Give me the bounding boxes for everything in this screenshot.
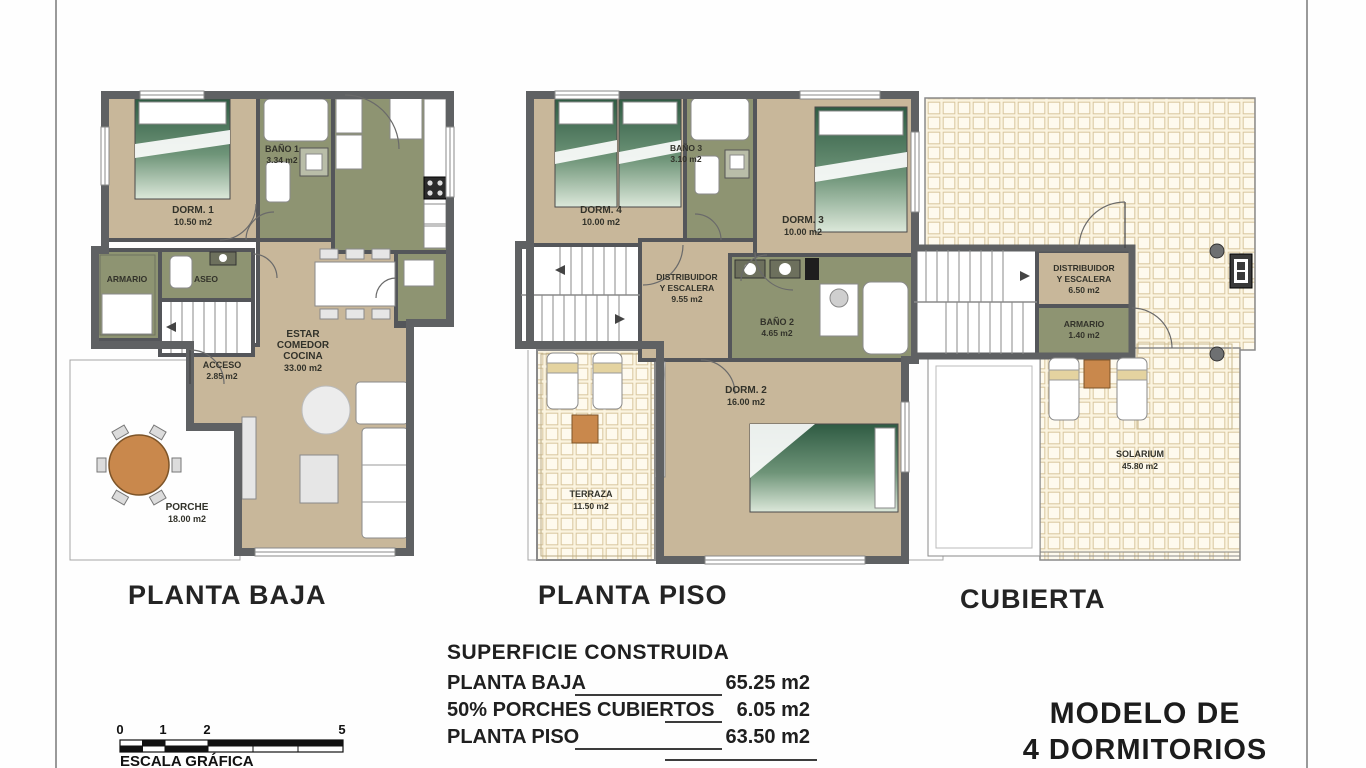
- model-line-1: MODELO DE: [1020, 697, 1270, 731]
- scale-bar: [120, 740, 343, 752]
- planta-baja-plan: PORCHE 18.00 m2: [60, 82, 470, 582]
- sheet-left-border: [55, 0, 57, 768]
- scale-tick-2: 2: [203, 722, 210, 737]
- scale-tick-0: 0: [116, 722, 123, 737]
- dorm1-bed: [135, 99, 230, 199]
- cubierta-plan: DISTRIBUIDOR Y ESCALERA 6.50 m2 ARMARIO …: [912, 86, 1272, 586]
- summary-row-value: 63.50 m2: [700, 726, 810, 749]
- roof-drain-1: [1210, 244, 1224, 258]
- bano3-label: BAÑO 3: [670, 143, 702, 153]
- scale-label: ESCALA GRÁFICA: [120, 753, 254, 768]
- terraza-label: TERRAZA: [570, 489, 613, 499]
- dorm3-label: DORM. 3: [782, 215, 824, 226]
- bano2-area: 4.65 m2: [761, 328, 792, 338]
- distribuidor-roof-label-1: DISTRIBUIDOR: [1053, 263, 1114, 273]
- porche-label: PORCHE: [166, 502, 209, 513]
- summary-row-label: 50% PORCHES CUBIERTOS: [447, 699, 714, 722]
- distribuidor-area: 9.55 m2: [671, 294, 702, 304]
- bano3-area: 3.10 m2: [670, 154, 701, 164]
- dorm2-area: 16.00 m2: [727, 397, 765, 407]
- estar-label-3: COCINA: [283, 351, 322, 362]
- planta-piso-plan: TERRAZA 11.50 m2: [515, 82, 955, 582]
- distribuidor-label-1: DISTRIBUIDOR: [656, 272, 717, 282]
- dorm4-area: 10.00 m2: [582, 217, 620, 227]
- terraza-area-label: 11.50 m2: [573, 501, 609, 511]
- dorm4-label: DORM. 4: [580, 205, 622, 216]
- summary-row-value: 65.25 m2: [700, 672, 810, 695]
- planta-baja-caption: PLANTA BAJA: [128, 580, 327, 611]
- coffee-table: [300, 455, 338, 503]
- cubierta-caption: CUBIERTA: [960, 584, 1106, 615]
- acceso-area: 2.85 m2: [206, 371, 237, 381]
- distribuidor-roof-label-2: Y ESCALERA: [1057, 274, 1112, 284]
- summary-title: SUPERFICIE CONSTRUIDA: [447, 641, 729, 665]
- graphic-scale: 0 1 2 5 ESCALA GRÁFICA: [112, 720, 362, 768]
- dorm3-area: 10.00 m2: [784, 227, 822, 237]
- distribuidor-label-2: Y ESCALERA: [660, 283, 715, 293]
- scale-tick-5: 5: [338, 722, 345, 737]
- sofa: [356, 382, 408, 538]
- solarium-label: SOLARIUM: [1116, 449, 1164, 459]
- terraza-area: TERRAZA 11.50 m2: [537, 350, 655, 560]
- summary-row-label: PLANTA PISO: [447, 726, 579, 749]
- aseo-label: ASEO: [194, 274, 218, 284]
- dorm2-label: DORM. 2: [725, 385, 767, 396]
- tv-unit: [242, 417, 256, 499]
- armario-label: ARMARIO: [107, 274, 148, 284]
- estar-label-1: ESTAR: [286, 329, 320, 340]
- dorm3-bed: [815, 107, 907, 232]
- floorplan-sheet: PORCHE 18.00 m2: [0, 0, 1366, 768]
- armario-roof-area: 1.40 m2: [1068, 330, 1099, 340]
- dorm2-bed: [750, 424, 898, 512]
- armario-roof-label: ARMARIO: [1064, 319, 1105, 329]
- estar-label-2: COMEDOR: [277, 340, 330, 351]
- porch-round-table: [109, 435, 169, 495]
- model-line-2: 4 DORMITORIOS: [1020, 734, 1270, 767]
- terraza-table: [572, 415, 598, 443]
- solarium-area: 45.80 m2: [1122, 461, 1158, 471]
- scale-tick-1: 1: [159, 722, 166, 737]
- dorm1-label: DORM. 1: [172, 205, 214, 216]
- bano1-label: BAÑO 1: [265, 144, 299, 154]
- acceso-label: ACCESO: [203, 360, 242, 370]
- chimney-vent: [1230, 254, 1252, 288]
- roof-drain-2: [1210, 347, 1224, 361]
- sheet-right-border: [1306, 0, 1308, 768]
- bano1-area: 3.34 m2: [266, 155, 297, 165]
- round-rug: [302, 386, 350, 434]
- planta-piso-caption: PLANTA PISO: [538, 580, 728, 611]
- estar-area: 33.00 m2: [284, 363, 322, 373]
- summary-row-value: 6.05 m2: [700, 699, 810, 722]
- dining-set: [315, 249, 395, 319]
- summary-row-label: PLANTA BAJA: [447, 672, 586, 695]
- utility-fixture: [404, 260, 434, 286]
- lower-roof-area: [928, 358, 1040, 556]
- distribuidor-roof-area: 6.50 m2: [1068, 285, 1099, 295]
- dorm1-area: 10.50 m2: [174, 217, 212, 227]
- solarium-table: [1084, 360, 1110, 388]
- porche-area-label: 18.00 m2: [168, 514, 206, 524]
- summary-total-line: [665, 759, 817, 761]
- bano2-label: BAÑO 2: [760, 317, 794, 327]
- model-title-block: MODELO DE 4 DORMITORIOS: [1020, 697, 1270, 767]
